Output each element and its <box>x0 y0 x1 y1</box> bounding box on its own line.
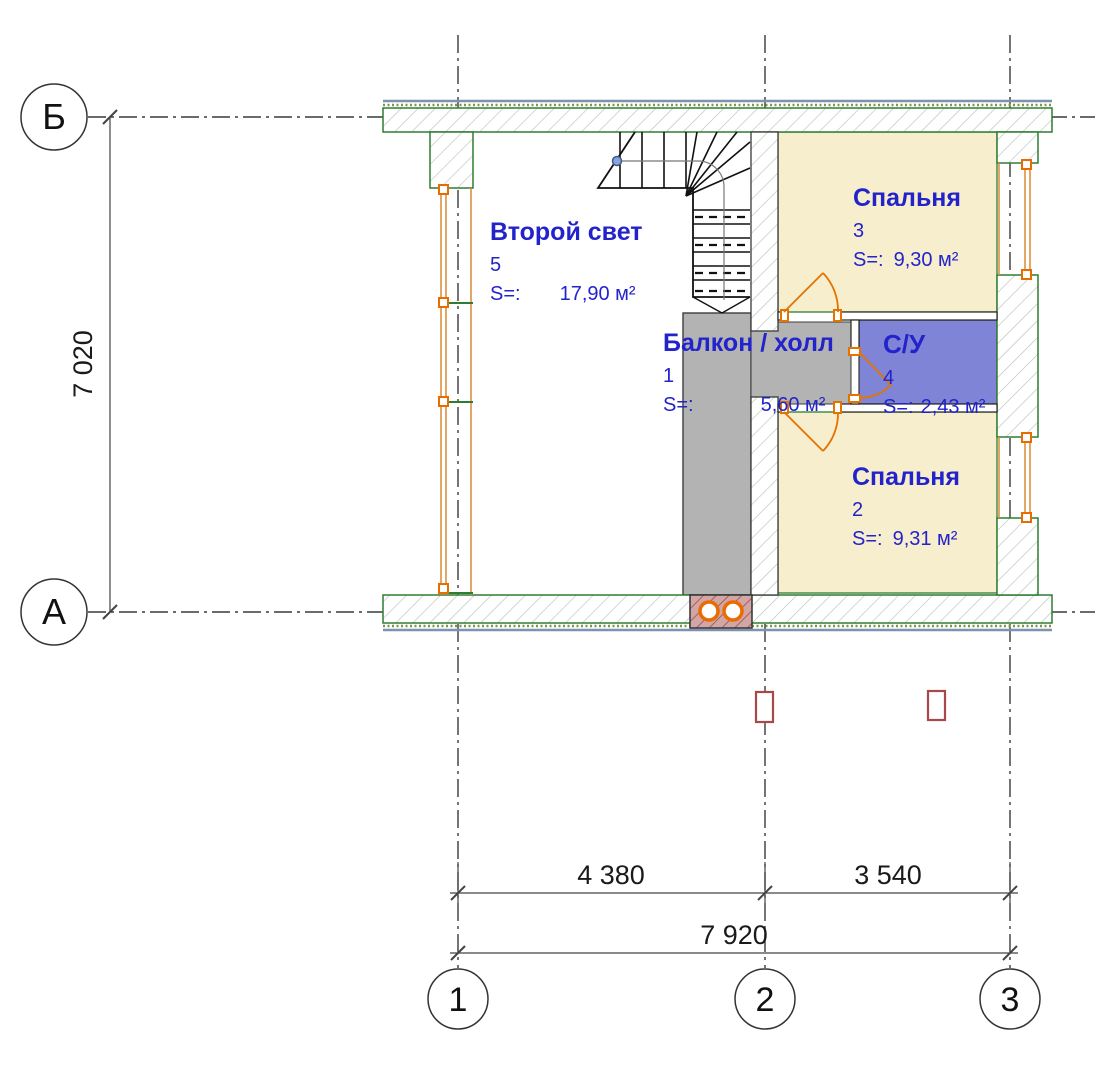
floor-plan-page: 7 020 4 380 3 540 7 920 Б А 1 2 3 Второй… <box>0 0 1118 1080</box>
room-area-value: 2,43 м² <box>921 396 986 418</box>
dimension-left <box>103 110 117 619</box>
partition-bedroom3-right <box>838 312 997 320</box>
jamb-icon <box>849 395 860 402</box>
column-marker-icon <box>928 691 945 720</box>
room-area-label: S=: <box>852 528 883 550</box>
dimension-total: 7 920 <box>700 920 768 950</box>
room-number: 3 <box>853 220 961 242</box>
wall-grid2-upper <box>751 132 778 331</box>
chimney-flue-icon <box>700 602 718 620</box>
room-name: Балкон / холл <box>663 329 834 358</box>
window-joint-icon <box>1022 160 1031 169</box>
grid-bubble-2: 2 <box>756 981 775 1019</box>
wall-right-pier-top <box>997 132 1038 163</box>
column-markers <box>756 691 945 722</box>
window-joint-icon <box>1022 433 1031 442</box>
grid-bubble-3: 3 <box>1001 981 1020 1019</box>
dimension-span-1-2: 4 380 <box>577 860 645 890</box>
room-label-bathroom: С/У 4 S=: 2,43 м² <box>883 330 985 418</box>
jamb-icon <box>834 402 841 413</box>
wall-right-pier-middle <box>997 275 1038 437</box>
room-area: S=: 2,43 м² <box>883 396 985 418</box>
room-name: Спальня <box>852 463 960 492</box>
room-area: S=: 9,31 м² <box>852 528 960 550</box>
grid-bubble-1: 1 <box>449 981 468 1019</box>
wall-top <box>383 108 1052 132</box>
dimension-left-text: 7 020 <box>68 330 98 398</box>
window-joint-icon <box>1022 513 1031 522</box>
window-left-wall <box>439 185 473 595</box>
window-joint-icon <box>439 185 448 194</box>
room-label-hall: Балкон / холл 1 S=: 5,60 м² <box>663 329 834 416</box>
room-name: Второй свет <box>490 218 643 247</box>
room-area-value: 17,90 м² <box>560 283 636 305</box>
room-number: 4 <box>883 367 985 389</box>
room-area-value: 9,30 м² <box>894 249 959 271</box>
room-area-value: 5,60 м² <box>761 394 826 416</box>
column-marker-icon <box>756 692 773 722</box>
room-area-value: 9,31 м² <box>893 528 958 550</box>
window-joint-icon <box>1022 270 1031 279</box>
grid-bubble-A: А <box>42 591 66 632</box>
room-area-label: S=: <box>663 394 694 416</box>
room-label-second-light: Второй свет 5 S=: 17,90 м² <box>490 218 643 305</box>
room-number: 1 <box>663 365 834 387</box>
room-area: S=: 9,30 м² <box>853 249 961 271</box>
room-name: Спальня <box>853 184 961 213</box>
room-name: С/У <box>883 330 985 360</box>
window-joint-icon <box>439 397 448 406</box>
room-area: S=: 17,90 м² <box>490 283 643 305</box>
room-number: 2 <box>852 499 960 521</box>
dimension-span-2-3: 3 540 <box>854 860 922 890</box>
room-area-label: S=: <box>883 396 914 418</box>
jamb-icon <box>849 348 860 355</box>
wall-right-pier-bottom <box>997 518 1038 595</box>
room-area-label: S=: <box>853 249 884 271</box>
wall-grid2-lower <box>751 397 778 595</box>
wall-left-pier <box>430 132 473 188</box>
grid-bubble-B: Б <box>42 96 66 137</box>
stair-walkline-start-dot <box>613 157 622 166</box>
room-label-bedroom3: Спальня 3 S=: 9,30 м² <box>853 184 961 271</box>
dimension-bottom-texts: 4 380 3 540 7 920 <box>577 860 922 950</box>
chimney-block <box>690 595 752 628</box>
room-label-bedroom2: Спальня 2 S=: 9,31 м² <box>852 463 960 550</box>
window-joint-icon <box>439 584 448 593</box>
room-area-label: S=: <box>490 283 521 305</box>
room-area: S=: 5,60 м² <box>663 394 834 416</box>
room-number: 5 <box>490 254 643 276</box>
chimney-flue-icon <box>724 602 742 620</box>
window-joint-icon <box>439 298 448 307</box>
